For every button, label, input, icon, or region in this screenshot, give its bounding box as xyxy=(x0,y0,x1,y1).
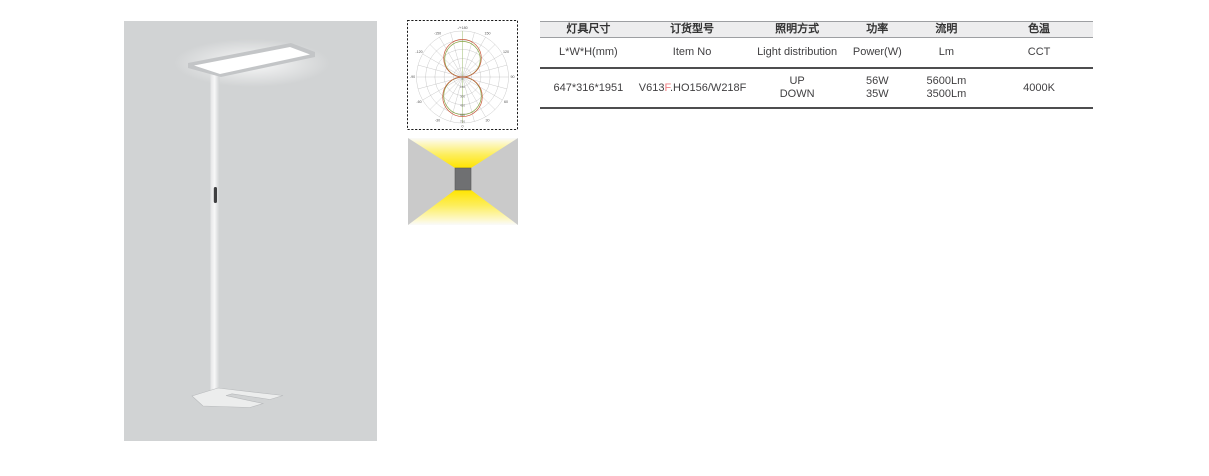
lumens-up: 5600Lm xyxy=(910,75,983,88)
polar-chart: -/+180 -150 150 -120 120 -90 90 -60 60 -… xyxy=(407,20,518,130)
header-size-zh: 灯具尺寸 xyxy=(540,22,637,38)
lumens-down: 3500Lm xyxy=(910,88,983,101)
svg-text:120: 120 xyxy=(503,50,509,54)
cell-item-no: V613F.HO156/W218F xyxy=(637,68,748,108)
floor-lamp-image xyxy=(124,21,377,441)
item-no-prefix: V613 xyxy=(639,82,665,94)
photometric-diagram: -/+180 -150 150 -120 120 -90 90 -60 60 -… xyxy=(407,20,518,130)
catalog-spec-page: { "product": { "image_label": "floor-sta… xyxy=(0,0,1209,476)
cell-power: 56W 35W xyxy=(847,68,908,108)
header-size-en: L*W*H(mm) xyxy=(540,38,637,69)
svg-text:-120: -120 xyxy=(415,50,422,54)
light-direction-icon xyxy=(408,138,518,225)
svg-text:300: 300 xyxy=(460,94,465,98)
touch-dimmer-strip xyxy=(214,187,217,203)
light-distribution-down: DOWN xyxy=(749,88,845,101)
header-itemno-en: Item No xyxy=(637,38,748,69)
header-lumen-en: Lm xyxy=(908,38,985,69)
cell-cct: 4000K xyxy=(985,68,1093,108)
svg-text:0: 0 xyxy=(462,125,464,129)
table-header-row-zh: 灯具尺寸 订货型号 照明方式 功率 流明 色温 xyxy=(540,22,1093,38)
svg-text:-60: -60 xyxy=(416,100,421,104)
lamp-pole xyxy=(211,69,220,397)
svg-text:-30: -30 xyxy=(435,119,440,123)
up-down-light-graphic xyxy=(408,138,518,225)
cell-size: 647*316*1951 xyxy=(540,68,637,108)
svg-text:60: 60 xyxy=(504,100,508,104)
svg-text:30: 30 xyxy=(486,119,490,123)
product-image-panel xyxy=(124,21,377,441)
header-power-zh: 功率 xyxy=(847,22,908,38)
header-lumen-zh: 流明 xyxy=(908,22,985,38)
header-cct-zh: 色温 xyxy=(985,22,1093,38)
svg-text:90: 90 xyxy=(511,75,515,79)
svg-text:450: 450 xyxy=(460,104,465,108)
spec-table-container: 灯具尺寸 订货型号 照明方式 功率 流明 色温 L*W*H(mm) Item N… xyxy=(540,21,1093,109)
cell-light-distribution: UP DOWN xyxy=(747,68,847,108)
header-cct-en: CCT xyxy=(985,38,1093,69)
light-distribution-up: UP xyxy=(749,75,845,88)
svg-text:-/+180: -/+180 xyxy=(457,26,467,30)
fixture-body xyxy=(455,168,471,190)
header-lightdistribution-en: Light distribution xyxy=(747,38,847,69)
svg-text:600: 600 xyxy=(460,113,465,117)
header-lightdistribution-zh: 照明方式 xyxy=(747,22,847,38)
table-data-row: 647*316*1951 V613F.HO156/W218F UP DOWN 5… xyxy=(540,68,1093,108)
header-itemno-zh: 订货型号 xyxy=(637,22,748,38)
power-down: 35W xyxy=(849,88,906,101)
item-no-suffix: .HO156/W218F xyxy=(670,82,746,94)
svg-text:-90: -90 xyxy=(410,75,415,79)
table-header-row-en: L*W*H(mm) Item No Light distribution Pow… xyxy=(540,38,1093,69)
power-up: 56W xyxy=(849,75,906,88)
header-power-en: Power(W) xyxy=(847,38,908,69)
svg-text:150: 150 xyxy=(485,32,491,36)
cell-lumens: 5600Lm 3500Lm xyxy=(908,68,985,108)
spec-table: 灯具尺寸 订货型号 照明方式 功率 流明 色温 L*W*H(mm) Item N… xyxy=(540,21,1093,109)
svg-text:750: 750 xyxy=(460,120,465,124)
svg-text:-150: -150 xyxy=(434,32,441,36)
svg-text:150: 150 xyxy=(460,85,465,89)
